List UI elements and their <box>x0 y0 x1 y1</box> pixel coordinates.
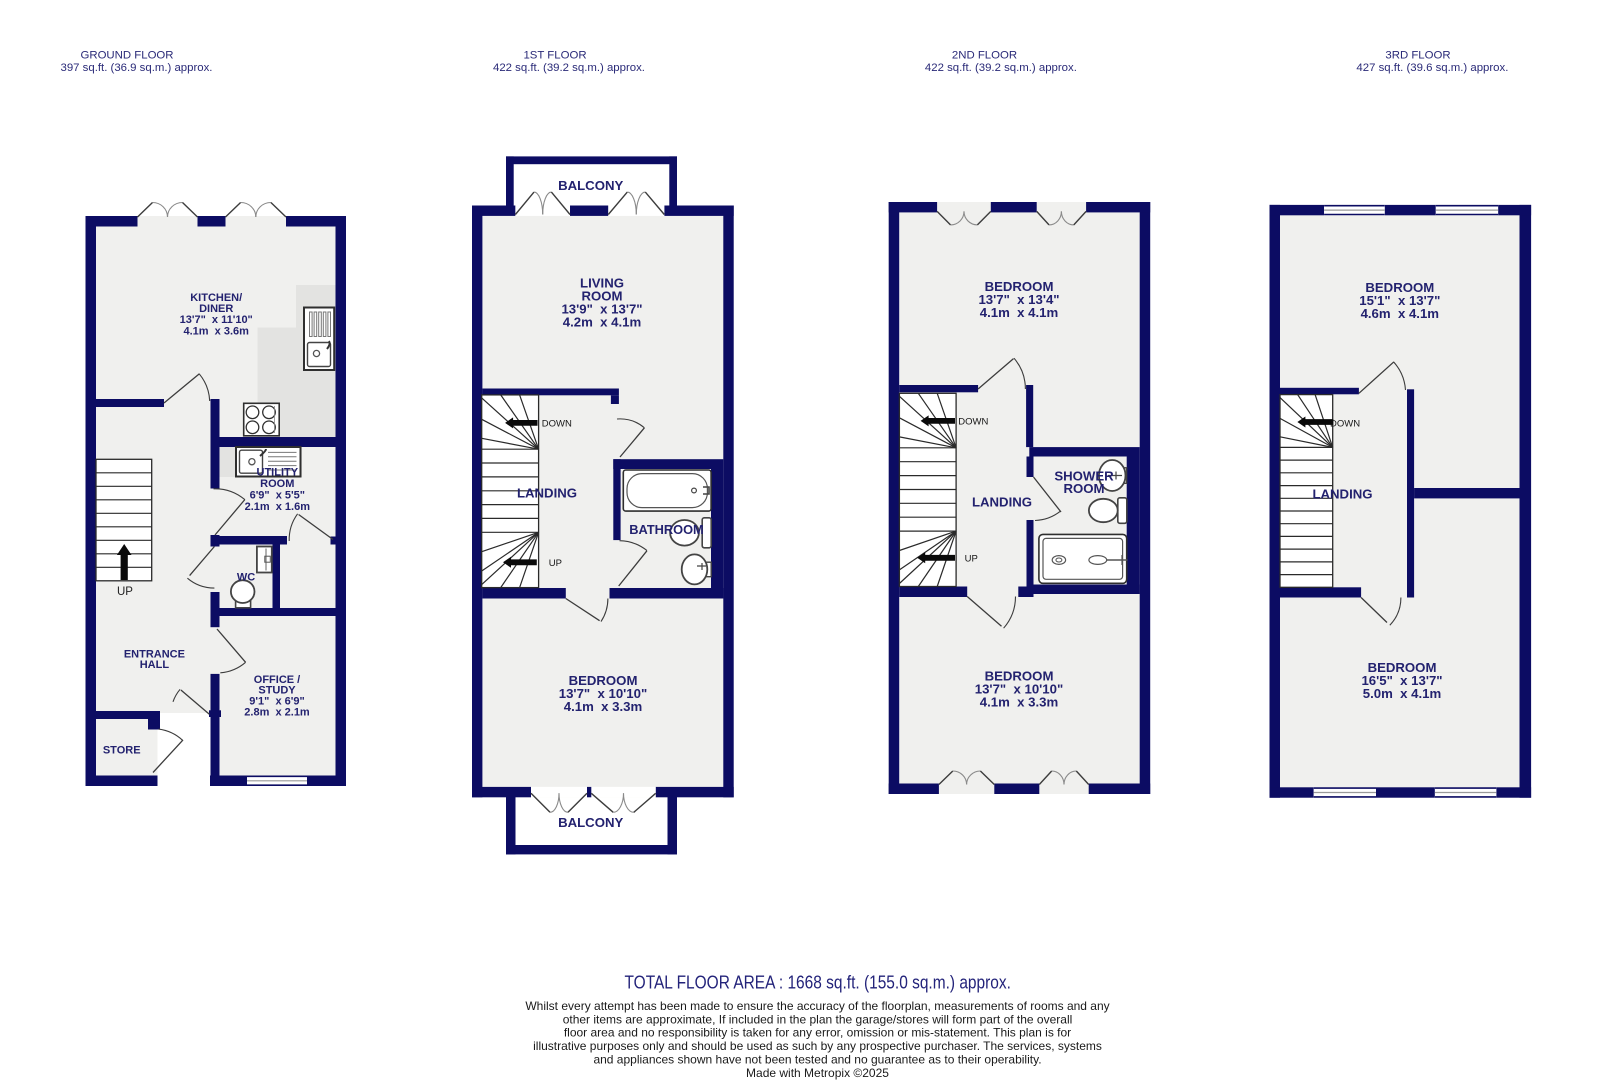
svg-text:UP: UP <box>549 558 562 569</box>
svg-text:4.2m x 4.1m: 4.2m x 4.1m <box>563 315 641 330</box>
svg-text:427 sq.ft. (39.6 sq.m.) approx: 427 sq.ft. (39.6 sq.m.) approx. <box>1356 62 1508 74</box>
svg-text:4.1m x 3.3m: 4.1m x 3.3m <box>980 695 1058 710</box>
svg-text:DOWN: DOWN <box>958 417 988 428</box>
svg-text:4.1m x 3.3m: 4.1m x 3.3m <box>564 699 642 714</box>
svg-text:1ST FLOOR: 1ST FLOOR <box>523 50 586 62</box>
svg-text:2ND FLOOR: 2ND FLOOR <box>952 50 1017 62</box>
svg-text:and appliances shown have not: and appliances shown have not been teste… <box>593 1052 1041 1066</box>
svg-text:422 sq.ft. (39.2 sq.m.) approx: 422 sq.ft. (39.2 sq.m.) approx. <box>493 62 645 74</box>
svg-text:4.1m x 3.6m: 4.1m x 3.6m <box>183 325 249 337</box>
svg-text:TOTAL FLOOR AREA : 1668 sq.ft.: TOTAL FLOOR AREA : 1668 sq.ft. (155.0 sq… <box>625 972 1011 993</box>
svg-text:BALCONY: BALCONY <box>558 178 623 193</box>
svg-text:UP: UP <box>117 586 133 598</box>
svg-text:WC: WC <box>237 572 255 584</box>
svg-text:other items are approximate, I: other items are approximate, If included… <box>563 1012 1073 1026</box>
svg-text:BALCONY: BALCONY <box>558 815 623 830</box>
svg-text:422 sq.ft. (39.2 sq.m.) approx: 422 sq.ft. (39.2 sq.m.) approx. <box>925 62 1077 74</box>
svg-text:HALL: HALL <box>140 659 170 671</box>
svg-text:2.1m x 1.6m: 2.1m x 1.6m <box>245 501 311 513</box>
svg-text:6'9" x 5'5": 6'9" x 5'5" <box>250 490 305 502</box>
svg-text:UTILITY: UTILITY <box>257 467 299 479</box>
svg-text:4.6m x 4.1m: 4.6m x 4.1m <box>1361 306 1439 321</box>
svg-text:397 sq.ft. (36.9 sq.m.) approx: 397 sq.ft. (36.9 sq.m.) approx. <box>61 62 213 74</box>
svg-text:4.1m x 4.1m: 4.1m x 4.1m <box>980 305 1058 320</box>
svg-text:ROOM: ROOM <box>1063 481 1104 496</box>
svg-text:DOWN: DOWN <box>1330 418 1360 429</box>
svg-text:3RD FLOOR: 3RD FLOOR <box>1385 50 1450 62</box>
svg-text:LANDING: LANDING <box>972 495 1032 510</box>
svg-text:Made with Metropix ©2025: Made with Metropix ©2025 <box>746 1066 889 1080</box>
svg-text:STORE: STORE <box>103 744 141 756</box>
svg-text:illustrative purposes only and: illustrative purposes only and should be… <box>533 1039 1102 1053</box>
svg-text:BATHROOM: BATHROOM <box>629 522 703 537</box>
svg-text:DOWN: DOWN <box>542 419 572 430</box>
svg-text:GROUND FLOOR: GROUND FLOOR <box>80 50 173 62</box>
svg-text:LANDING: LANDING <box>517 486 577 501</box>
svg-text:UP: UP <box>965 553 978 564</box>
svg-text:Whilst every attempt has been: Whilst every attempt has been made to en… <box>525 999 1109 1013</box>
svg-text:5.0m x 4.1m: 5.0m x 4.1m <box>1363 686 1441 701</box>
svg-text:floor area and no responsibili: floor area and no responsibility is take… <box>564 1026 1071 1040</box>
svg-text:ROOM: ROOM <box>260 478 294 490</box>
svg-text:LANDING: LANDING <box>1312 487 1372 502</box>
svg-text:2.8m x 2.1m: 2.8m x 2.1m <box>244 707 310 719</box>
